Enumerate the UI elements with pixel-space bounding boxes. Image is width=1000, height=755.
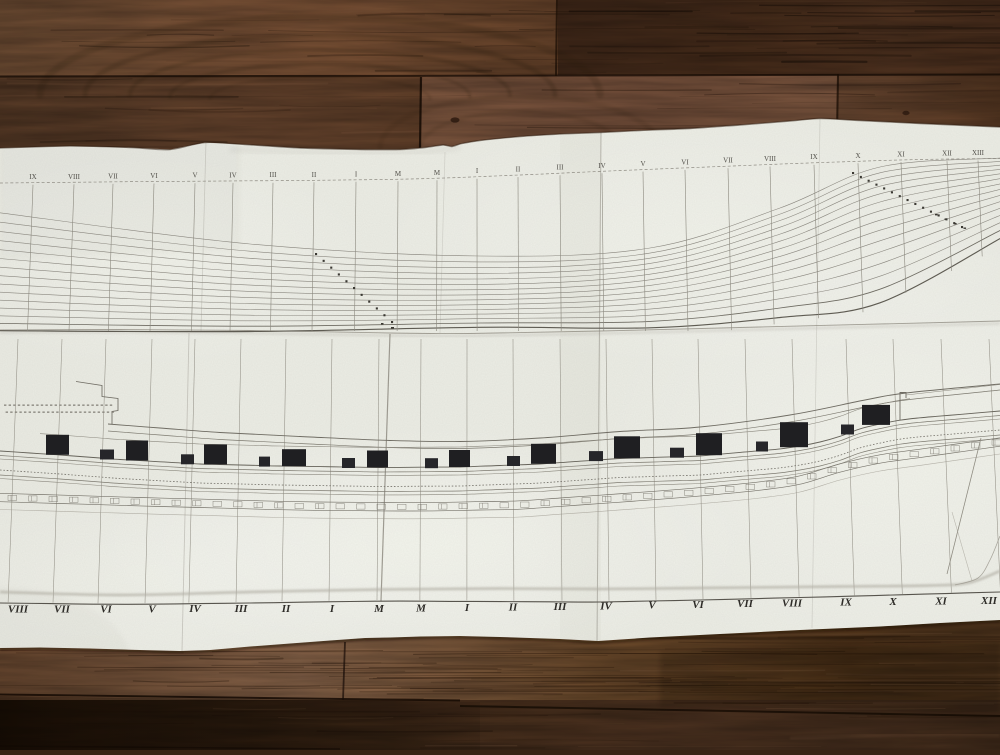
svg-text:VI: VI (150, 172, 158, 180)
svg-text:M: M (434, 169, 441, 177)
svg-text:IV: IV (599, 600, 613, 612)
svg-text:III: III (234, 603, 249, 615)
svg-text:XII: XII (942, 150, 952, 158)
svg-text:I: I (464, 602, 470, 614)
svg-text:IX: IX (29, 173, 36, 181)
svg-text:VIII: VIII (8, 604, 29, 616)
svg-text:I: I (329, 603, 335, 615)
svg-text:VIII: VIII (764, 155, 777, 163)
svg-text:XIII: XIII (972, 149, 985, 157)
svg-text:VIII: VIII (68, 173, 81, 181)
svg-text:M: M (373, 603, 385, 615)
svg-text:VII: VII (54, 603, 71, 615)
svg-text:VI: VI (692, 599, 704, 611)
svg-text:X: X (855, 152, 860, 160)
svg-text:XII: XII (980, 595, 998, 607)
svg-text:IV: IV (598, 162, 605, 170)
svg-text:VIII: VIII (782, 597, 803, 609)
svg-text:II: II (312, 171, 317, 179)
svg-text:VII: VII (737, 598, 754, 610)
svg-text:IV: IV (188, 603, 202, 615)
svg-text:VI: VI (681, 158, 689, 166)
svg-text:M: M (395, 170, 402, 178)
svg-text:II: II (516, 166, 521, 174)
svg-text:VII: VII (723, 157, 733, 165)
svg-text:VII: VII (108, 172, 118, 180)
svg-text:XI: XI (934, 596, 947, 608)
svg-text:IV: IV (229, 171, 236, 179)
svg-text:IX: IX (839, 596, 852, 608)
svg-text:V: V (192, 172, 197, 180)
svg-text:XI: XI (897, 151, 905, 159)
svg-text:IX: IX (810, 153, 817, 161)
svg-text:III: III (557, 164, 565, 172)
svg-text:X: X (888, 596, 897, 608)
svg-text:VI: VI (100, 603, 112, 615)
svg-text:II: II (508, 602, 518, 614)
svg-text:M: M (415, 603, 427, 615)
svg-text:V: V (640, 160, 645, 168)
svg-text:III: III (270, 171, 278, 179)
svg-text:III: III (553, 601, 568, 613)
svg-text:II: II (281, 603, 291, 615)
